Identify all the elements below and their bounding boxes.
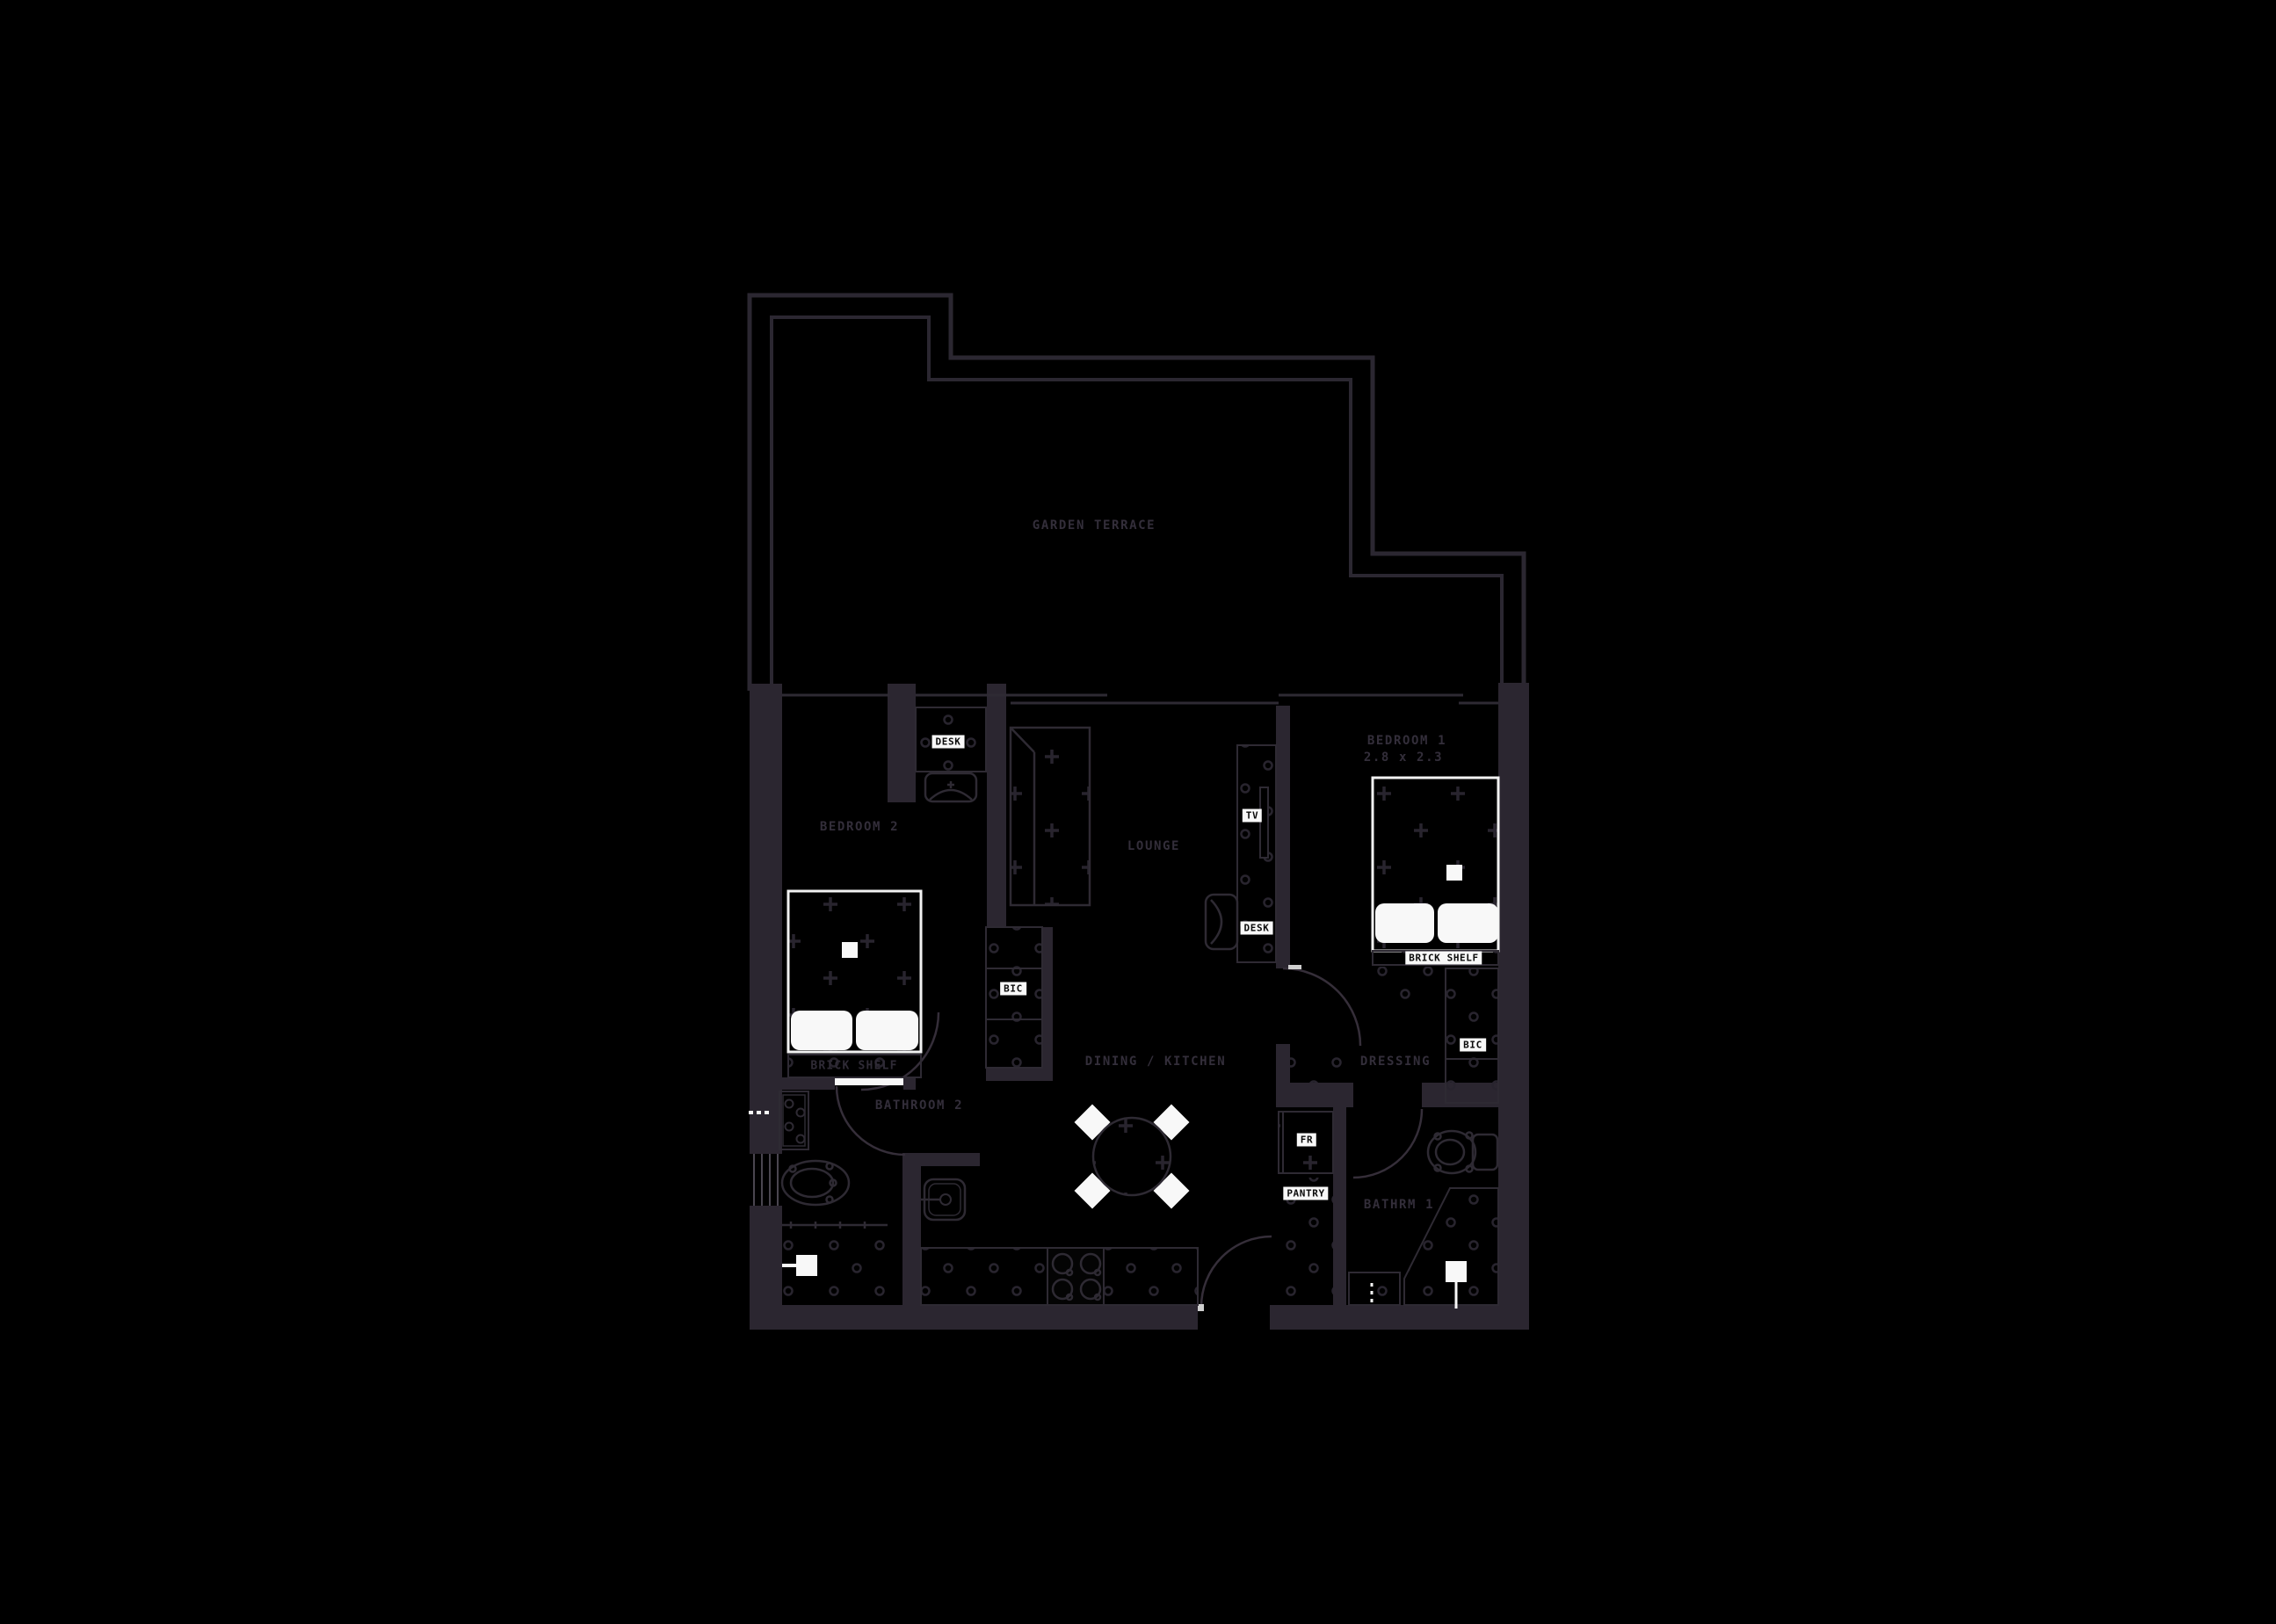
bedroom-2-pillow (856, 1011, 918, 1050)
dressing-door-arc (1283, 968, 1360, 1046)
bedroom-1-label: BEDROOM 1 (1367, 734, 1446, 748)
bedroom-2-bed-cushion (842, 942, 858, 958)
bathroom-1-vanity (1349, 1272, 1400, 1305)
toilet (1428, 1131, 1497, 1173)
bedroom-2-pillow (791, 1011, 852, 1050)
bedroom-1-bed-cushion (1446, 865, 1462, 881)
bedroom-2-door-threshold (835, 1077, 903, 1085)
floor-plan-drawing (0, 0, 2276, 1624)
garden-terrace-parapet (750, 295, 1524, 691)
shower-1-head (1446, 1261, 1467, 1282)
bathroom-1-door-arc (1353, 1109, 1422, 1178)
bedroom-2-desk-tag: DESK (932, 736, 965, 749)
floor-plan: GARDEN TERRACE BEDROOM 1 2.8 x 2.3 BEDRO… (0, 0, 2276, 1624)
dressing-floor-tiles (1290, 1050, 1347, 1083)
kitchen-counter (921, 1248, 1198, 1305)
dining-set (1074, 1104, 1189, 1208)
dressing-door-tick (1288, 965, 1301, 969)
lounge-desk-tag: DESK (1241, 922, 1273, 935)
dressing-bic-wardrobe (1446, 968, 1498, 1103)
dressing-bic-tag: BIC (1460, 1039, 1486, 1052)
bedroom-1-brick-shelf-tag: BRICK SHELF (1405, 952, 1482, 965)
dining-table (1093, 1118, 1171, 1195)
fridge-tag: FR (1297, 1134, 1316, 1147)
tv-unit (1260, 787, 1268, 858)
toilet (782, 1161, 849, 1205)
bedroom-1-dimensions: 2.8 x 2.3 (1364, 750, 1443, 765)
hall-bic-tag: BIC (1000, 982, 1026, 996)
tv-tag: TV (1243, 809, 1262, 823)
entry-door-tick (1198, 1304, 1204, 1311)
bathroom-1-fixtures (1349, 1131, 1498, 1309)
bedroom-1-pillow (1438, 903, 1498, 943)
bedroom-1-pillow (1375, 903, 1434, 943)
pantry-tag: PANTRY (1283, 1187, 1328, 1200)
shower-2-screen (782, 1222, 888, 1229)
dining-kitchen-label: DINING / KITCHEN (1085, 1055, 1226, 1069)
lounge-label: LOUNGE (1127, 839, 1180, 853)
lounge-sofa (1011, 728, 1090, 905)
bedroom-2-brick-shelf-label: BRICK SHELF (810, 1060, 897, 1073)
bathroom-2-label: BATHROOM 2 (875, 1098, 963, 1113)
hall-bic-wardrobe (986, 927, 1042, 1068)
lounge-chair (1206, 895, 1237, 949)
bathroom-2-door-arc (837, 1086, 905, 1155)
bedroom-1-floor-tiles (1373, 967, 1443, 1006)
bathroom-2-shelf-unit (779, 1091, 808, 1149)
bedroom-2-label: BEDROOM 2 (820, 820, 899, 834)
garden-terrace-label: GARDEN TERRACE (1033, 518, 1156, 533)
bedroom-2-furniture (788, 707, 986, 1077)
window (750, 1154, 782, 1206)
entry-door-arc (1201, 1236, 1272, 1307)
bedroom-2-chair (925, 773, 976, 801)
dressing-label: DRESSING (1360, 1055, 1431, 1069)
shower-2-head (796, 1255, 817, 1276)
bathroom-1-label: BATHRM 1 (1364, 1198, 1434, 1212)
wall-basin (921, 1179, 965, 1220)
